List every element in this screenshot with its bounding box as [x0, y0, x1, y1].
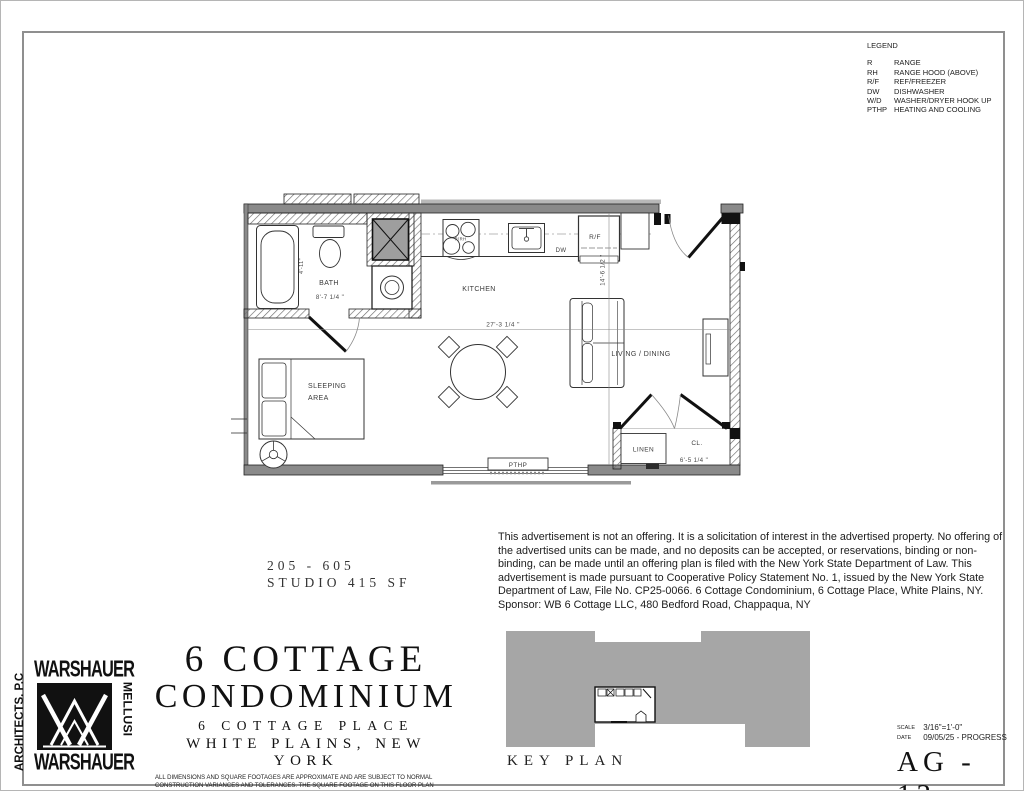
legend-row: W/DWASHER/DRYER HOOK UP — [867, 96, 992, 105]
legend-row: RRANGE — [867, 58, 992, 67]
kitchen-label: KITCHEN — [462, 286, 496, 293]
closet-width-dim: 6'-5 1/4 " — [680, 457, 708, 464]
logo-word-bottom: WARSHAUER — [34, 750, 134, 776]
legend-label: WASHER/DRYER HOOK UP — [894, 96, 992, 105]
toilet — [320, 240, 341, 268]
legend-title: LEGEND — [867, 41, 992, 50]
logo-word-top: WARSHAUER — [34, 657, 134, 683]
dishwasher-label: DW — [556, 248, 567, 254]
living-dining-label: LIVING / DINING — [611, 351, 670, 358]
legend-label: DISHWASHER — [894, 87, 945, 96]
fine-print: ALL DIMENSIONS AND SQUARE FOOTAGES ARE A… — [155, 774, 457, 791]
title-block: 6 COTTAGE CONDOMINIUM 6 COTTAGE PLACE WH… — [151, 641, 461, 791]
date-row: DATE 09/05/25 - PROGRESS — [897, 733, 1009, 743]
sleeping-area-label2: AREA — [308, 395, 329, 402]
sleeping-area-label: SLEEPING — [308, 383, 346, 390]
legend-label: RANGE HOOD (ABOVE) — [894, 68, 978, 77]
shaft — [367, 213, 414, 266]
exterior-walls — [231, 194, 745, 485]
range-label: R/RH — [455, 237, 467, 242]
legend-label: REF/FREEZER — [894, 77, 946, 86]
legend: LEGEND RRANGE RHRANGE HOOD (ABOVE) R/FRE… — [867, 41, 992, 115]
legend-row: R/FREF/FREEZER — [867, 77, 992, 86]
legend-abbr: W/D — [867, 96, 894, 105]
project-title-line2: CONDOMINIUM — [151, 679, 461, 715]
legend-abbr: R — [867, 58, 894, 67]
drawing-sheet: LEGEND RRANGE RHRANGE HOOD (ABOVE) R/FRE… — [0, 0, 1024, 791]
closet-door-right — [681, 395, 728, 429]
bath-door — [309, 317, 346, 352]
legend-row: PTHPHEATING AND COOLING — [867, 105, 992, 114]
bath-depth-dim: 4'-11" — [299, 258, 305, 274]
bath-label: BATH — [319, 280, 339, 287]
architect-logo: WARSHAUER MELLUSI WARSHAUER ARCHITECTS. … — [13, 649, 137, 775]
unit-width-dim: 27'-3 1/4 " — [486, 322, 520, 329]
legend-label: HEATING AND COOLING — [894, 105, 981, 114]
pillow — [262, 401, 286, 436]
legend-abbr: R/F — [867, 77, 894, 86]
unit-depth-dim: 14'-6 1/2 " — [601, 254, 607, 285]
building-footprint — [506, 631, 810, 747]
bath-width-dim: 8'-7 1/4 " — [316, 294, 344, 301]
unit-type: STUDIO 415 SF — [267, 574, 411, 591]
date-label: DATE — [897, 733, 921, 743]
bath-sink — [313, 226, 344, 238]
legend-abbr: DW — [867, 87, 894, 96]
legend-abbr: PTHP — [867, 105, 894, 114]
dining-table — [438, 336, 517, 407]
unit-info: 205 - 605 STUDIO 415 SF — [267, 557, 411, 591]
entry-door — [689, 215, 726, 258]
scale-value: 3/16"=1'-0" — [923, 723, 962, 732]
legend-row: DWDISHWASHER — [867, 87, 992, 96]
project-address-line2: WHITE PLAINS, NEW YORK — [151, 736, 461, 770]
fridge-label: R/F — [589, 234, 601, 241]
project-address-line1: 6 COTTAGE PLACE — [151, 718, 461, 734]
project-title-line1: 6 COTTAGE — [151, 641, 461, 679]
bed — [259, 359, 364, 468]
logo-word-left: ARCHITECTS. P.C — [14, 655, 26, 771]
scale-label: SCALE — [897, 723, 921, 733]
closet-label: CL. — [691, 440, 702, 447]
legend-abbr: RH — [867, 68, 894, 77]
disclaimer-text: This advertisement is not an offering. I… — [498, 531, 1010, 613]
key-plan — [503, 627, 863, 757]
keyplan-unit-marker — [595, 687, 655, 722]
living-furniture — [570, 299, 728, 388]
drawing-info-block: SCALE 3/16"=1'-0" DATE 09/05/25 - PROGRE… — [897, 723, 1009, 791]
pillow — [262, 363, 286, 398]
linen-label: LINEN — [633, 447, 654, 454]
unit-numbers: 205 - 605 — [267, 557, 411, 574]
logo-mark — [37, 683, 112, 750]
drawing-number: AG - 13 — [897, 746, 1009, 791]
key-plan-label: KEY PLAN — [507, 753, 628, 770]
pthp-label: PTHP — [509, 462, 527, 469]
date-value: 09/05/25 - PROGRESS — [923, 733, 1007, 742]
table — [451, 345, 506, 400]
scale-row: SCALE 3/16"=1'-0" — [897, 723, 1009, 733]
counter — [621, 213, 649, 249]
legend-row: RHRANGE HOOD (ABOVE) — [867, 68, 992, 77]
logo-word-right: MELLUSI — [121, 682, 135, 750]
legend-label: RANGE — [894, 58, 921, 67]
closet-door-left — [620, 395, 652, 429]
floor-plan: BATH 8'-7 1/4 " 4'-11" KITCHEN 27'-3 1/4… — [231, 186, 751, 496]
